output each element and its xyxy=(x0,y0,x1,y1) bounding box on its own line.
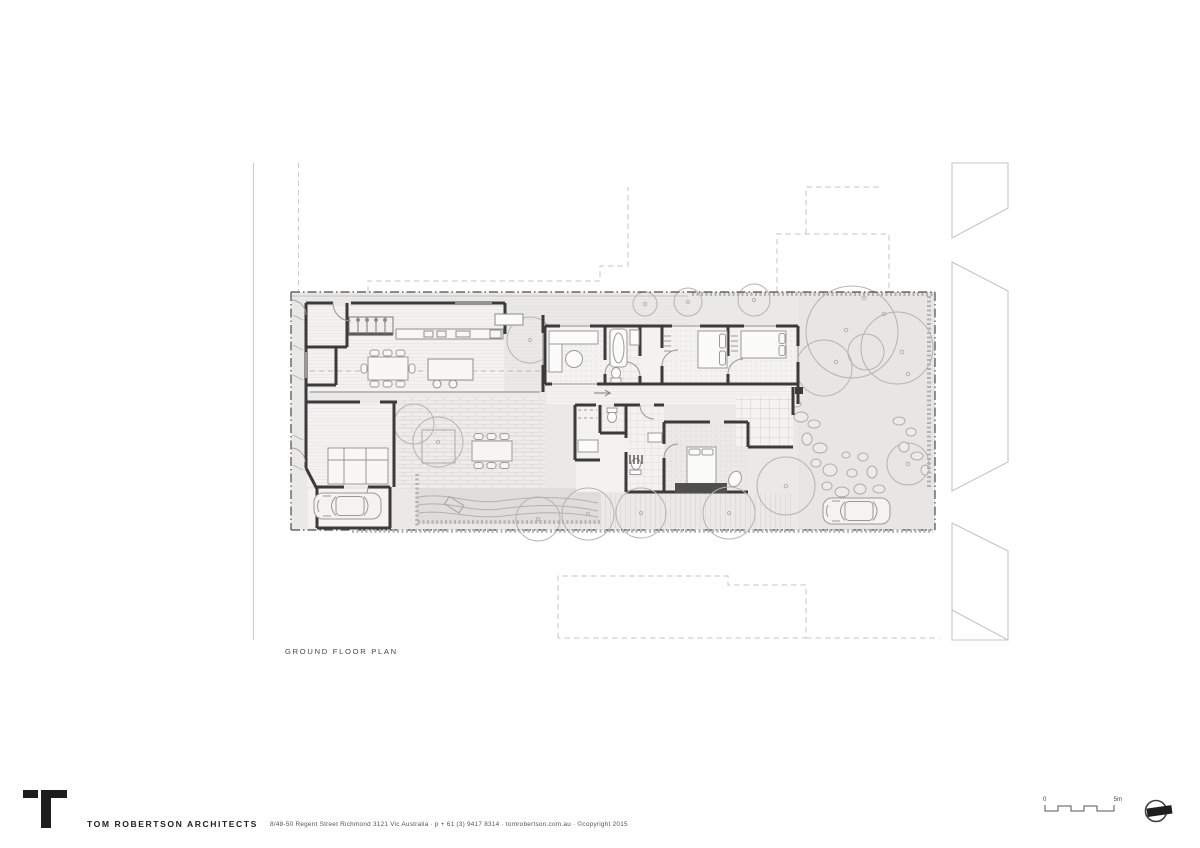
toilet xyxy=(632,459,641,470)
sofa xyxy=(549,331,598,344)
coffee-table xyxy=(566,351,583,368)
fridge xyxy=(490,330,501,338)
rear-garden-area xyxy=(798,292,935,530)
laundry-bench xyxy=(578,440,598,452)
cooktop xyxy=(424,331,433,337)
garage-car xyxy=(314,493,381,519)
ground-floor-plan-drawing xyxy=(0,0,1200,848)
vanity xyxy=(648,433,662,442)
kitchen-island xyxy=(428,359,473,380)
scale-bar-steps xyxy=(1040,805,1122,817)
stool xyxy=(449,380,457,388)
carport-car xyxy=(823,498,890,524)
scale-bar: 0 5m xyxy=(1040,797,1122,821)
tra-t-logo-icon xyxy=(23,790,93,829)
drawing-sheet: GROUND FLOOR PLAN TOM ROBERTSON ARCHITEC… xyxy=(0,0,1200,848)
scale-start-label: 0 xyxy=(1043,797,1046,803)
toilet xyxy=(608,412,617,423)
link-floor xyxy=(505,314,544,392)
vanity xyxy=(630,330,639,345)
bench-seat xyxy=(675,483,727,493)
bathroom2-floor xyxy=(627,406,663,491)
snug-furniture xyxy=(328,448,388,484)
stool xyxy=(433,380,441,388)
north-arrow-icon xyxy=(1143,797,1173,825)
scale-end-label: 5m xyxy=(1114,797,1122,803)
neighbor-building-outlines xyxy=(952,163,1008,640)
skylight xyxy=(495,314,523,325)
toilet xyxy=(612,368,621,379)
drawing-title: GROUND FLOOR PLAN xyxy=(285,647,398,656)
firm-name: TOM ROBERTSON ARCHITECTS xyxy=(87,819,258,829)
sink xyxy=(456,331,470,337)
contact-line: 8/48-50 Regent Street Richmond 3121 Vic … xyxy=(270,821,628,828)
outdoor-dining-table xyxy=(472,434,512,469)
